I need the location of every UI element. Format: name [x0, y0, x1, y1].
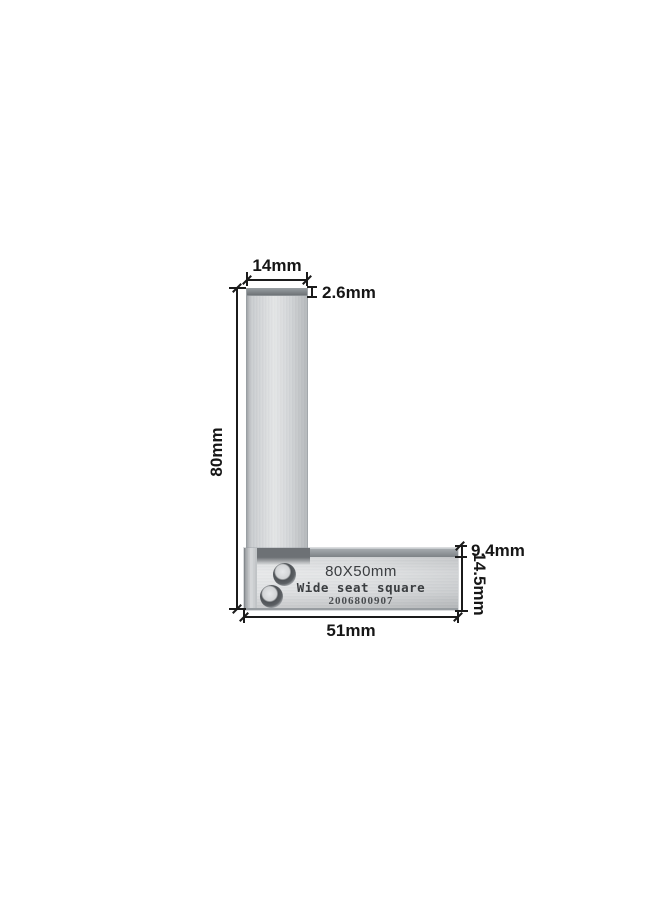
dim-label-seat-length: 51mm: [244, 621, 458, 641]
product-drawing: 80X50mm Wide seat square 2006800907 14mm…: [0, 0, 660, 900]
dim-label-box: 80mm: [207, 425, 227, 479]
square-blade: [246, 288, 308, 548]
dim-line: [461, 558, 463, 612]
blade-top-edge: [247, 288, 307, 296]
square-seat: 80X50mm Wide seat square 2006800907: [244, 548, 458, 610]
dim-tick: [307, 296, 317, 298]
dim-line: [247, 279, 307, 281]
dim-label-seat-height: 14.5mm: [469, 552, 489, 615]
dim-label-box: 14.5mm: [469, 557, 489, 611]
engraving-serial: 2006800907: [256, 596, 466, 608]
dim-label-blade-thickness: 2.6mm: [322, 283, 376, 303]
dim-label-blade-length: 80mm: [207, 427, 227, 476]
dim-label-blade-width: 14mm: [240, 256, 314, 276]
dim-line: [236, 288, 238, 610]
engraving-name: Wide seat square: [256, 581, 466, 595]
dim-line: [244, 616, 458, 618]
engraving-size: 80X50mm: [256, 564, 466, 580]
engraving-text: 80X50mm Wide seat square 2006800907: [256, 564, 466, 608]
